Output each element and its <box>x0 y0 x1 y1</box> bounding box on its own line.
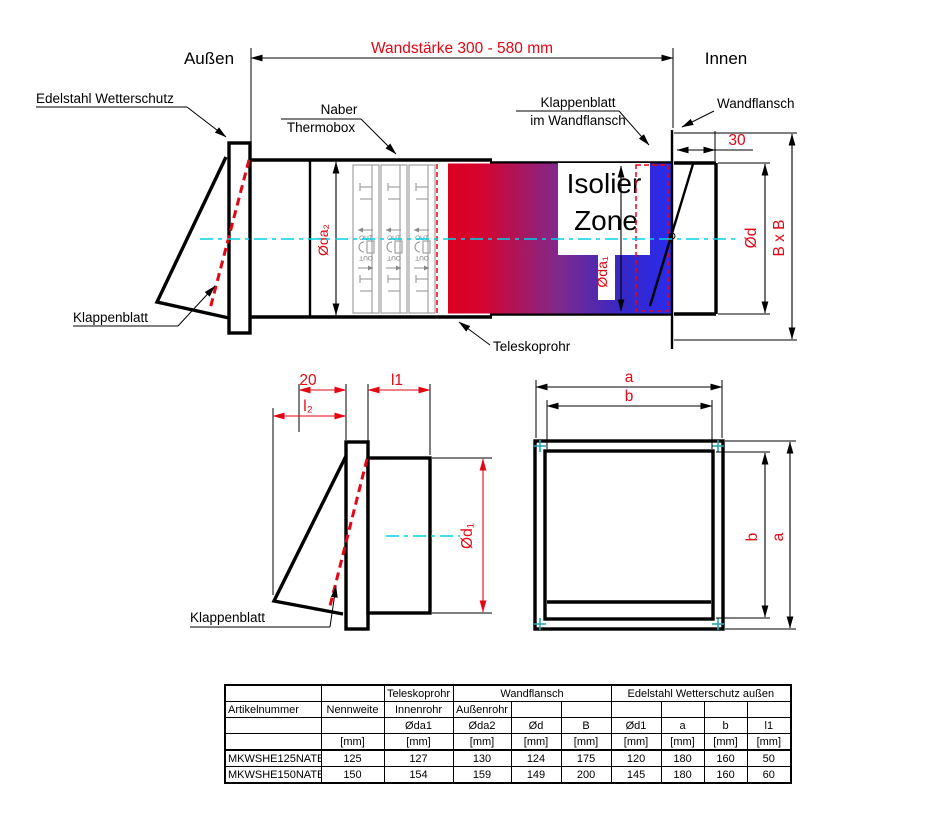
klappenblatt-wandflansch-callout: Klappenblatt im Wandflansch <box>516 95 649 145</box>
dim-header: B <box>561 718 611 734</box>
dim-header: l1 <box>747 718 791 734</box>
front-view: a b b a <box>534 369 796 630</box>
dim-header: Øda1 <box>384 718 453 734</box>
table-row: MKWSHE125NATB 125 127 130 124 175 120 18… <box>225 750 791 767</box>
cell <box>704 702 747 718</box>
cell <box>561 702 611 718</box>
naber-thermobox-callout: Naber Thermobox <box>281 102 396 154</box>
side-view: 20 l1 l₂ Ød₁ Klappenblatt <box>190 372 492 629</box>
value-cell: 154 <box>384 767 453 784</box>
value-cell: 60 <box>747 767 791 784</box>
dim-b-right-text: b <box>744 533 761 542</box>
isolier-line1: Isolier <box>567 168 642 199</box>
value-cell: 130 <box>453 750 511 767</box>
cell <box>511 702 561 718</box>
cell <box>321 718 384 734</box>
unit-cell: [mm] <box>611 734 661 751</box>
mounting-plate <box>346 442 368 629</box>
value-cell: 180 <box>661 767 704 784</box>
dim-30: 30 <box>677 131 753 161</box>
edelstahl-label: Edelstahl Wetterschutz <box>36 91 174 106</box>
artikelnummer-header: Artikelnummer <box>225 702 321 718</box>
value-cell: 180 <box>661 750 704 767</box>
unit-cell: [mm] <box>321 734 384 751</box>
unit-cell: [mm] <box>561 734 611 751</box>
flange-inner-square <box>545 451 713 619</box>
dim-header: b <box>704 718 747 734</box>
dim-b-text: b <box>625 388 634 405</box>
dim-header: a <box>661 718 704 734</box>
edelstahl-callout: Edelstahl Wetterschutz <box>36 91 226 137</box>
drawing-sheet: Wandstärke 300 - 580 mm Außen Innen <box>0 0 946 815</box>
group-edelstahl: Edelstahl Wetterschutz außen <box>611 685 791 702</box>
group-teleskoprohr: Teleskoprohr <box>384 685 453 702</box>
value-cell: 149 <box>511 767 561 784</box>
nennweite-header: Nennweite <box>321 702 384 718</box>
flow-arrow-icon <box>358 228 363 233</box>
artikel-cell: MKWSHE125NATB <box>225 750 321 767</box>
artikel-cell: MKWSHE150NATB <box>225 767 321 784</box>
cell <box>225 734 321 751</box>
value-cell: 120 <box>611 750 661 767</box>
naber-label: Naber <box>321 102 358 117</box>
group-wandflansch: Wandflansch <box>453 685 611 702</box>
cell <box>225 718 321 734</box>
value-cell: 159 <box>453 767 511 784</box>
dim-a-right-text: a <box>770 532 787 541</box>
unit-cell: [mm] <box>453 734 511 751</box>
wandflansch-callout: Wandflansch <box>682 96 795 127</box>
cell <box>747 702 791 718</box>
thermobox-label: Thermobox <box>287 120 356 135</box>
mounting-plate <box>229 143 250 333</box>
table-subheader-row: Artikelnummer Nennweite Innenrohr Außenr… <box>225 702 791 718</box>
value-cell: 145 <box>611 767 661 784</box>
dim-20-text: 20 <box>299 372 317 389</box>
wandstaerke-text: Wandstärke 300 - 580 mm <box>371 40 553 57</box>
main-section-view: Wandstärke 300 - 580 mm Außen Innen <box>36 40 797 354</box>
dim-a-text: a <box>625 369 634 386</box>
unit-cell: [mm] <box>661 734 704 751</box>
unit-cell: [mm] <box>704 734 747 751</box>
cell <box>321 685 384 702</box>
aussenrohr-header: Außenrohr <box>453 702 511 718</box>
klappenblatt-label: Klappenblatt <box>190 610 265 625</box>
value-cell: 127 <box>384 750 453 767</box>
cell <box>225 685 321 702</box>
dim-30-text: 30 <box>728 132 746 149</box>
unit-cell: [mm] <box>747 734 791 751</box>
isolier-line2: Zone <box>574 205 638 236</box>
flow-arrow-icon <box>386 228 391 233</box>
aussen-label: Außen <box>184 49 234 68</box>
oda2-text: Øda₂ <box>315 224 331 256</box>
oda1-text: Øda₁ <box>594 256 610 287</box>
dim-l1-text: l1 <box>391 372 403 389</box>
klappen-wf-line2: im Wandflansch <box>530 113 626 128</box>
out-label: OUT <box>387 254 401 261</box>
value-cell: 160 <box>704 750 747 767</box>
weather-hood <box>157 143 250 333</box>
klappenblatt-label: Klappenblatt <box>73 310 148 325</box>
dim-l1: l1 <box>368 372 430 455</box>
value-cell: 175 <box>561 750 611 767</box>
bxb-text: B x B <box>771 219 788 256</box>
table-dim-header-row: Øda1 Øda2 Ød B Ød1 a b l1 <box>225 718 791 734</box>
dim-od1-text: Ød₁ <box>459 523 476 549</box>
dim-l2-text: l₂ <box>303 398 312 415</box>
value-cell: 200 <box>561 767 611 784</box>
teleskoprohr-callout: Teleskoprohr <box>459 322 571 354</box>
unit-cell: [mm] <box>511 734 561 751</box>
dim-header: Øda2 <box>453 718 511 734</box>
table-group-header-row: Teleskoprohr Wandflansch Edelstahl Wette… <box>225 685 791 702</box>
value-cell: 125 <box>321 750 384 767</box>
value-cell: 160 <box>704 767 747 784</box>
value-cell: 124 <box>511 750 561 767</box>
dim-header: Ød <box>511 718 561 734</box>
out-label: OUT <box>415 254 429 261</box>
value-cell: 50 <box>747 750 791 767</box>
teleskoprohr-label: Teleskoprohr <box>493 339 571 354</box>
cell <box>611 702 661 718</box>
table-row: MKWSHE150NATB 150 154 159 149 200 145 18… <box>225 767 791 784</box>
value-cell: 150 <box>321 767 384 784</box>
out-label: OUT <box>359 254 373 261</box>
flow-arrow-icon <box>414 228 419 233</box>
table-unit-row: [mm] [mm] [mm] [mm] [mm] [mm] [mm] [mm] … <box>225 734 791 751</box>
spec-table: Teleskoprohr Wandflansch Edelstahl Wette… <box>224 684 792 784</box>
unit-cell: [mm] <box>384 734 453 751</box>
innenrohr-header: Innenrohr <box>384 702 453 718</box>
dim-header: Ød1 <box>611 718 661 734</box>
klappen-wf-line1: Klappenblatt <box>540 95 615 110</box>
cell <box>661 702 704 718</box>
wandflansch-label: Wandflansch <box>717 96 795 111</box>
innen-label: Innen <box>705 49 748 68</box>
od-text: Ød <box>743 228 760 249</box>
